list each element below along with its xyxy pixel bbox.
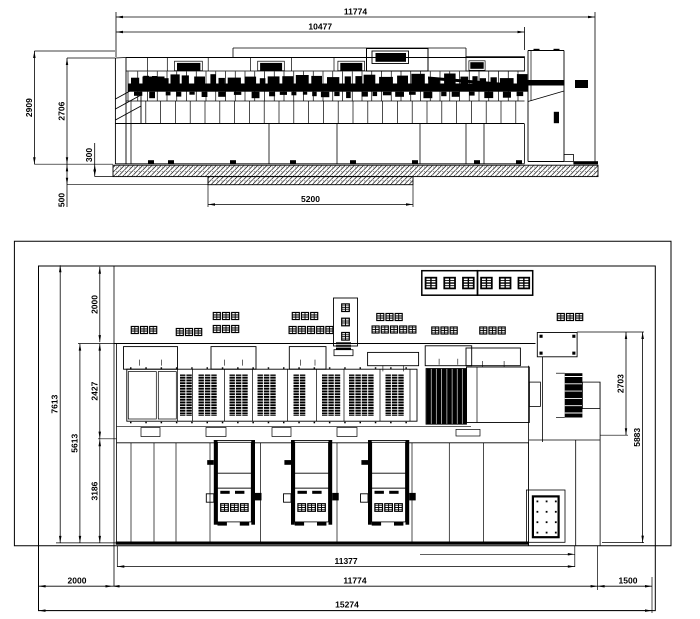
svg-text:2703: 2703 <box>616 374 626 393</box>
svg-text:2706: 2706 <box>57 101 67 120</box>
svg-text:11774: 11774 <box>344 7 367 17</box>
svg-text:7613: 7613 <box>50 394 60 413</box>
svg-text:5613: 5613 <box>69 434 79 453</box>
svg-text:1500: 1500 <box>619 576 638 586</box>
svg-text:5883: 5883 <box>632 428 642 447</box>
svg-text:2909: 2909 <box>24 98 34 117</box>
svg-text:2427: 2427 <box>89 381 99 400</box>
svg-text:11377: 11377 <box>334 556 357 566</box>
svg-text:5200: 5200 <box>301 194 320 204</box>
svg-text:10477: 10477 <box>308 22 332 32</box>
svg-text:300: 300 <box>84 148 94 162</box>
svg-text:11774: 11774 <box>343 576 366 586</box>
svg-text:3186: 3186 <box>89 481 99 500</box>
svg-text:2000: 2000 <box>68 576 87 586</box>
svg-text:2000: 2000 <box>89 295 99 314</box>
svg-text:500: 500 <box>57 193 67 207</box>
svg-text:15274: 15274 <box>335 600 359 610</box>
